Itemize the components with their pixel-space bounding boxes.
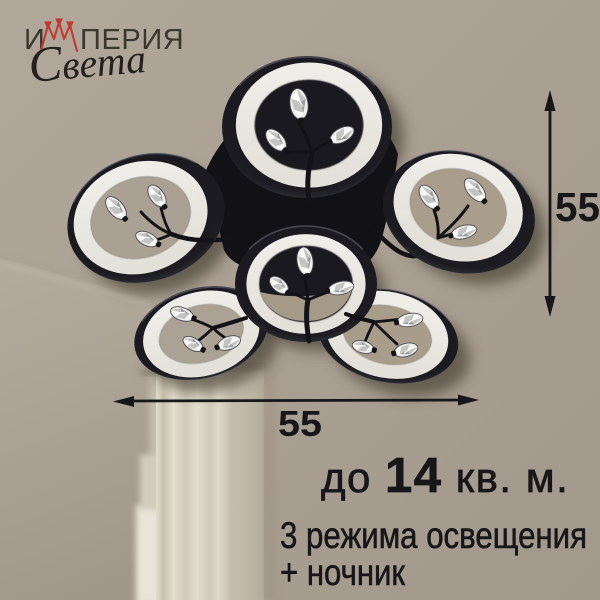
svg-text:55: 55 <box>278 403 322 444</box>
svg-text:3 режима освещения: 3 режима освещения <box>280 515 587 556</box>
svg-text:55: 55 <box>555 184 600 230</box>
svg-text:+ ночник: + ночник <box>280 552 406 593</box>
svg-text:до 14 кв. м.: до 14 кв. м. <box>321 449 569 503</box>
